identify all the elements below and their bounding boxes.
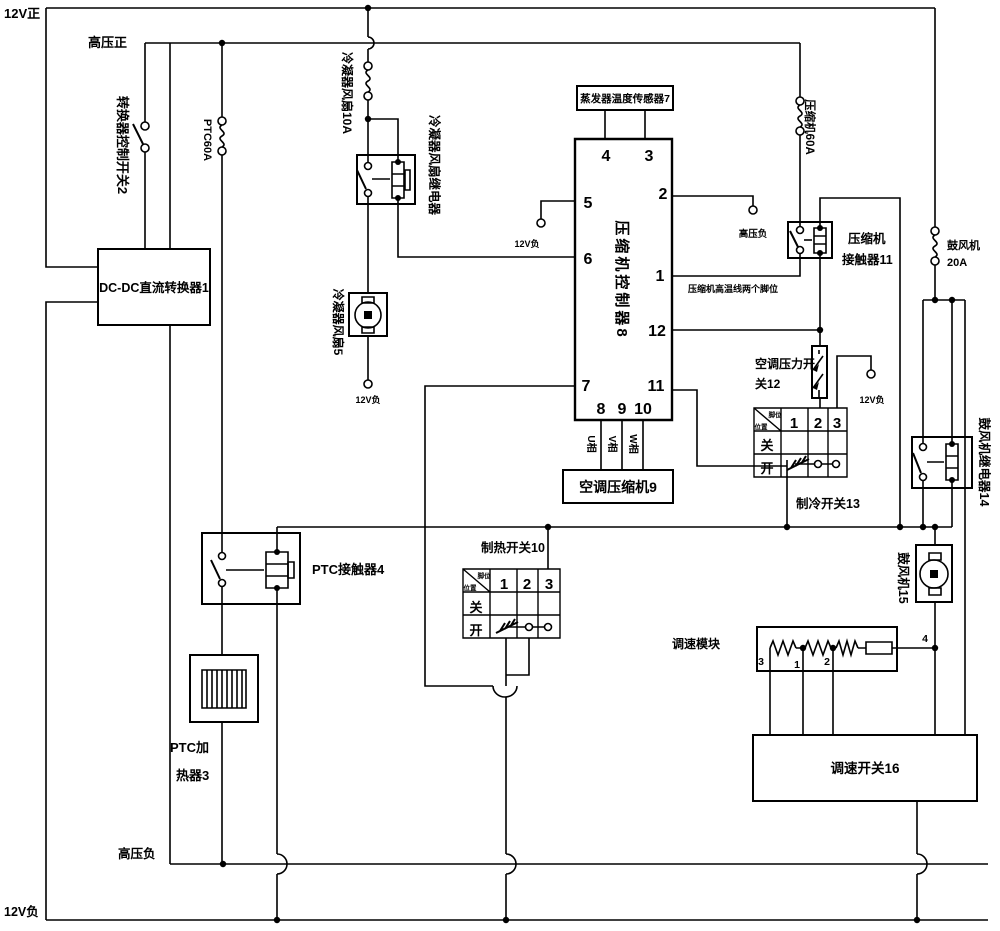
label-dcdc: DC-DC直流转换器1 xyxy=(99,280,209,295)
heat-col-2: 2 xyxy=(523,576,531,593)
compressor-fuse: 压缩机60A xyxy=(796,97,817,155)
pin-4: 4 xyxy=(602,148,611,165)
heat-corner-bottom: 位置 xyxy=(464,583,478,592)
evaporator-sensor: 蒸发器温度传感器7 xyxy=(577,86,673,110)
module-term-1: 1 xyxy=(794,659,800,671)
label-heating-switch: 制热开关10 xyxy=(481,540,545,555)
label-12v-pos: 12V正 xyxy=(4,6,40,21)
ptc-fuse: PTC60A xyxy=(201,117,226,161)
heat-col-3: 3 xyxy=(545,576,553,593)
label-w-phase: W相 xyxy=(627,434,640,453)
heat-row-off: 关 xyxy=(469,600,482,615)
cool-col-1: 1 xyxy=(790,415,798,432)
pin-6: 6 xyxy=(584,251,593,268)
blower-motor: 鼓风机15 xyxy=(896,545,952,604)
module-term-2: 2 xyxy=(824,656,830,668)
label-contactor11-line2: 接触器11 xyxy=(842,252,893,267)
cool-corner-top: 脚位 xyxy=(769,410,783,419)
module-term-4: 4 xyxy=(922,633,928,645)
label-u-phase: U相 xyxy=(585,435,598,452)
wire-pin1-contactor xyxy=(672,254,800,276)
label-hv-pos: 高压正 xyxy=(88,35,127,50)
label-pressure-switch-line1: 空调压力开 xyxy=(755,356,815,371)
label-condenser-fan: 冷凝器风扇5 xyxy=(331,289,346,356)
pin-12: 12 xyxy=(648,323,666,340)
pin-3: 3 xyxy=(645,148,654,165)
label-converter-switch: 转换器控制开关2 xyxy=(115,96,130,194)
label-pressure-switch-line2: 关12 xyxy=(755,376,781,391)
cool-row-off: 关 xyxy=(760,438,773,453)
blower-fuse: 鼓风机 20A xyxy=(931,227,980,269)
pin-10: 10 xyxy=(634,401,652,418)
wire-pin2-hvneg xyxy=(672,196,753,206)
label-hv-neg: 高压负 xyxy=(118,846,156,861)
condenser-fan-relay: 冷凝器风扇继电器 xyxy=(357,115,442,216)
heat-col-1: 1 xyxy=(500,576,508,593)
label-controller: 压缩机控制器8 xyxy=(613,220,631,339)
label-evap-sensor: 蒸发器温度传感器7 xyxy=(580,92,670,105)
cool-col-2: 2 xyxy=(814,415,822,432)
wire-heatswitch-gnd xyxy=(506,638,516,920)
terminal-pin2-hvneg xyxy=(749,206,757,214)
condenser-fan-motor: 冷凝器风扇5 12V负 xyxy=(331,289,387,405)
cooling-switch-table: 脚位 位置 1 2 3 关 开 制冷开关13 xyxy=(754,408,860,511)
pin-9: 9 xyxy=(618,401,627,418)
label-pressure-12vneg: 12V负 xyxy=(859,394,884,405)
compressor-controller: 压缩机控制器8 4 3 5 6 2 1 12 7 11 8 9 10 xyxy=(575,139,672,420)
label-v-phase: V相 xyxy=(606,436,619,453)
module-term-3: 3 xyxy=(758,656,764,668)
note-compressor-high-temp: 压缩机高温线两个脚位 xyxy=(688,283,778,294)
label-blower-fuse-line1: 鼓风机 xyxy=(947,238,980,252)
heat-corner-top: 脚位 xyxy=(478,571,492,580)
pin-1: 1 xyxy=(656,268,665,285)
ac-pressure-switch: 空调压力开 关12 12V负 xyxy=(755,346,885,405)
label-speed-module: 调速模块 xyxy=(672,636,721,651)
speed-switch: 调速开关16 xyxy=(753,735,977,801)
label-pin2-hvneg: 高压负 xyxy=(739,228,768,240)
pin-2: 2 xyxy=(659,186,668,203)
wire-speed-switch-gnd xyxy=(917,801,927,920)
label-ptc-contactor: PTC接触器4 xyxy=(312,562,385,577)
wire-ptc-coil-gnd xyxy=(277,588,287,920)
cool-row-on: 开 xyxy=(760,461,773,476)
cool-corner-bottom: 位置 xyxy=(755,422,769,431)
label-pin5-12vneg: 12V负 xyxy=(514,238,539,249)
wire-dcdc-12vneg-out xyxy=(46,302,98,920)
junction-dots xyxy=(219,5,955,923)
label-speed-switch: 调速开关16 xyxy=(830,760,900,776)
label-ptc-heater-line1: PTC加 xyxy=(170,740,209,755)
label-fan-relay: 冷凝器风扇继电器 xyxy=(427,115,442,216)
wire-coil-to-pin6 xyxy=(398,198,575,257)
label-fan-fuse: 冷凝器风扇10A xyxy=(340,52,355,134)
label-cooling-switch: 制冷开关13 xyxy=(796,496,860,511)
label-ptc-fuse: PTC60A xyxy=(201,119,213,161)
converter-control-switch: 转换器控制开关2 xyxy=(115,96,149,194)
label-contactor11-line1: 压缩机 xyxy=(848,231,886,246)
wire-pin5-gnd xyxy=(541,201,575,219)
label-blower-relay: 鼓风机继电器14 xyxy=(977,418,992,507)
label-blower-fuse-line2: 20A xyxy=(947,257,967,269)
label-ac-compressor: 空调压缩机9 xyxy=(579,479,657,495)
pin-5: 5 xyxy=(584,195,593,212)
circuit-diagram: 12V正 高压正 高压负 12V负 转换器控制开关2 PTC60A DC-DC直… xyxy=(0,0,1000,931)
pin-11: 11 xyxy=(648,378,665,395)
heat-row-on: 开 xyxy=(469,623,482,638)
compressor-contactor: 压缩机 接触器11 xyxy=(788,222,893,267)
label-compressor-fuse: 压缩机60A xyxy=(803,99,817,155)
cool-col-3: 3 xyxy=(833,415,841,432)
label-blower: 鼓风机15 xyxy=(896,552,911,603)
ptc-heater: PTC加 热器3 xyxy=(170,655,258,783)
terminal-pin5-gnd xyxy=(537,219,545,227)
ac-compressor: U相 V相 W相 空调压缩机9 xyxy=(563,434,673,503)
ptc-contactor: PTC接触器4 xyxy=(202,533,385,604)
wire-evap-sensor xyxy=(605,110,645,139)
dcdc-converter: DC-DC直流转换器1 xyxy=(98,249,210,325)
wire-heatswitch-pin2 xyxy=(506,638,529,675)
pin-7: 7 xyxy=(582,378,591,395)
label-12v-neg: 12V负 xyxy=(4,904,39,919)
label-fan-12vneg: 12V负 xyxy=(355,394,380,405)
heating-switch-table: 制热开关10 脚位 位置 1 2 3 关 开 xyxy=(463,540,560,638)
schematic-svg: 12V正 高压正 高压负 12V负 转换器控制开关2 PTC60A DC-DC直… xyxy=(0,0,1000,931)
pin-8: 8 xyxy=(597,401,606,418)
label-ptc-heater-line2: 热器3 xyxy=(176,768,209,783)
